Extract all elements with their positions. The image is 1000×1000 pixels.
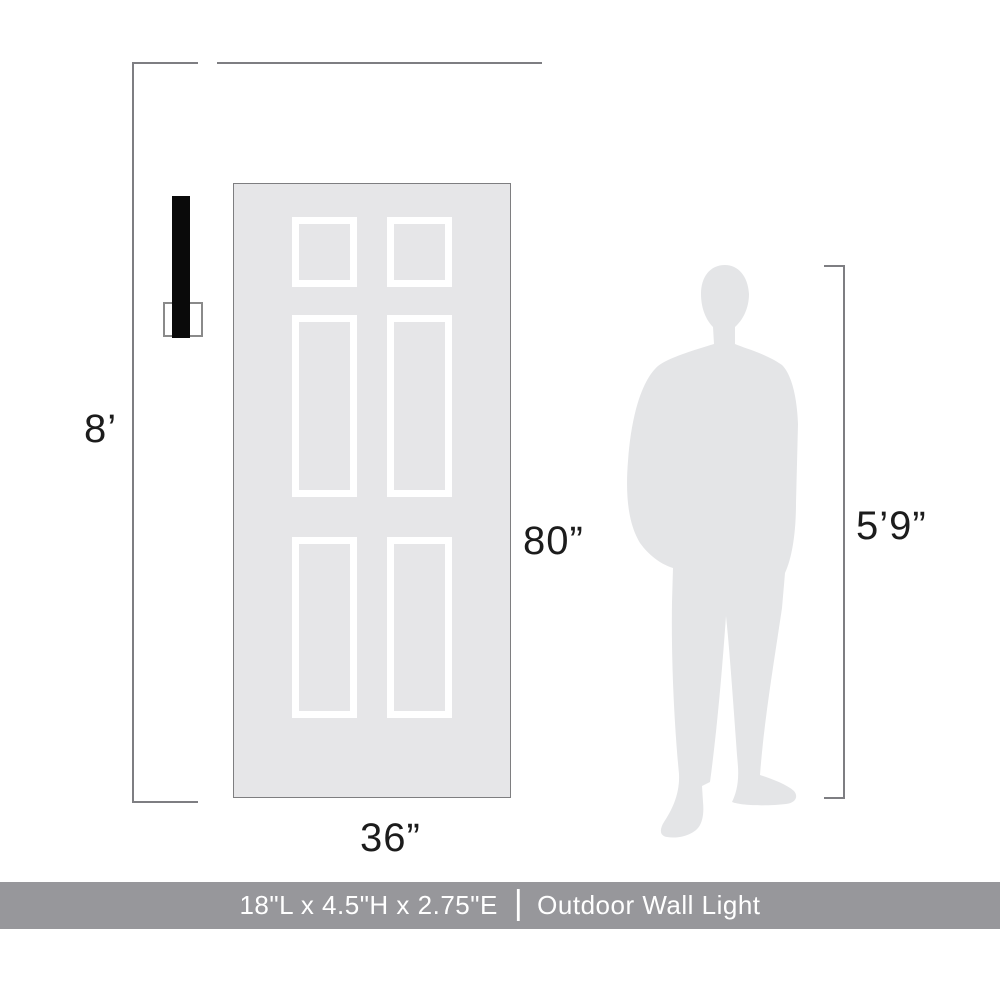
ceiling-height-bottom-tick	[132, 801, 198, 803]
person-silhouette	[622, 262, 807, 840]
person-height-label: 5’9”	[856, 506, 927, 546]
door-panel-top-right	[387, 217, 452, 287]
door-panel-bottom-left	[292, 537, 357, 718]
product-name-text: Outdoor Wall Light	[537, 890, 760, 921]
person-height-top-tick	[824, 265, 845, 267]
person-height-vertical-line	[843, 265, 845, 799]
ceiling-height-top-tick	[132, 62, 198, 64]
ceiling-height-vertical-line	[132, 62, 134, 803]
door-graphic	[233, 183, 511, 798]
product-dimensions-text: 18"L x 4.5"H x 2.75"E	[239, 890, 497, 921]
door-height-label: 80”	[523, 521, 584, 561]
product-info-banner: 18"L x 4.5"H x 2.75"E | Outdoor Wall Lig…	[0, 882, 1000, 929]
separator-bar: |	[514, 884, 523, 923]
door-panel-bottom-right	[387, 537, 452, 718]
person-height-bottom-tick	[824, 797, 845, 799]
ceiling-line	[217, 62, 542, 64]
door-panel-middle-left	[292, 315, 357, 497]
wall-light-fixture	[172, 196, 190, 338]
door-panel-middle-right	[387, 315, 452, 497]
door-panel-top-left	[292, 217, 357, 287]
door-width-label: 36”	[360, 818, 421, 858]
ceiling-height-label: 8’	[84, 409, 117, 449]
scale-comparison-diagram: 8’ 80” 36” 5’9” 18"L x 4.5"H x 2.75"E | …	[0, 0, 1000, 1000]
